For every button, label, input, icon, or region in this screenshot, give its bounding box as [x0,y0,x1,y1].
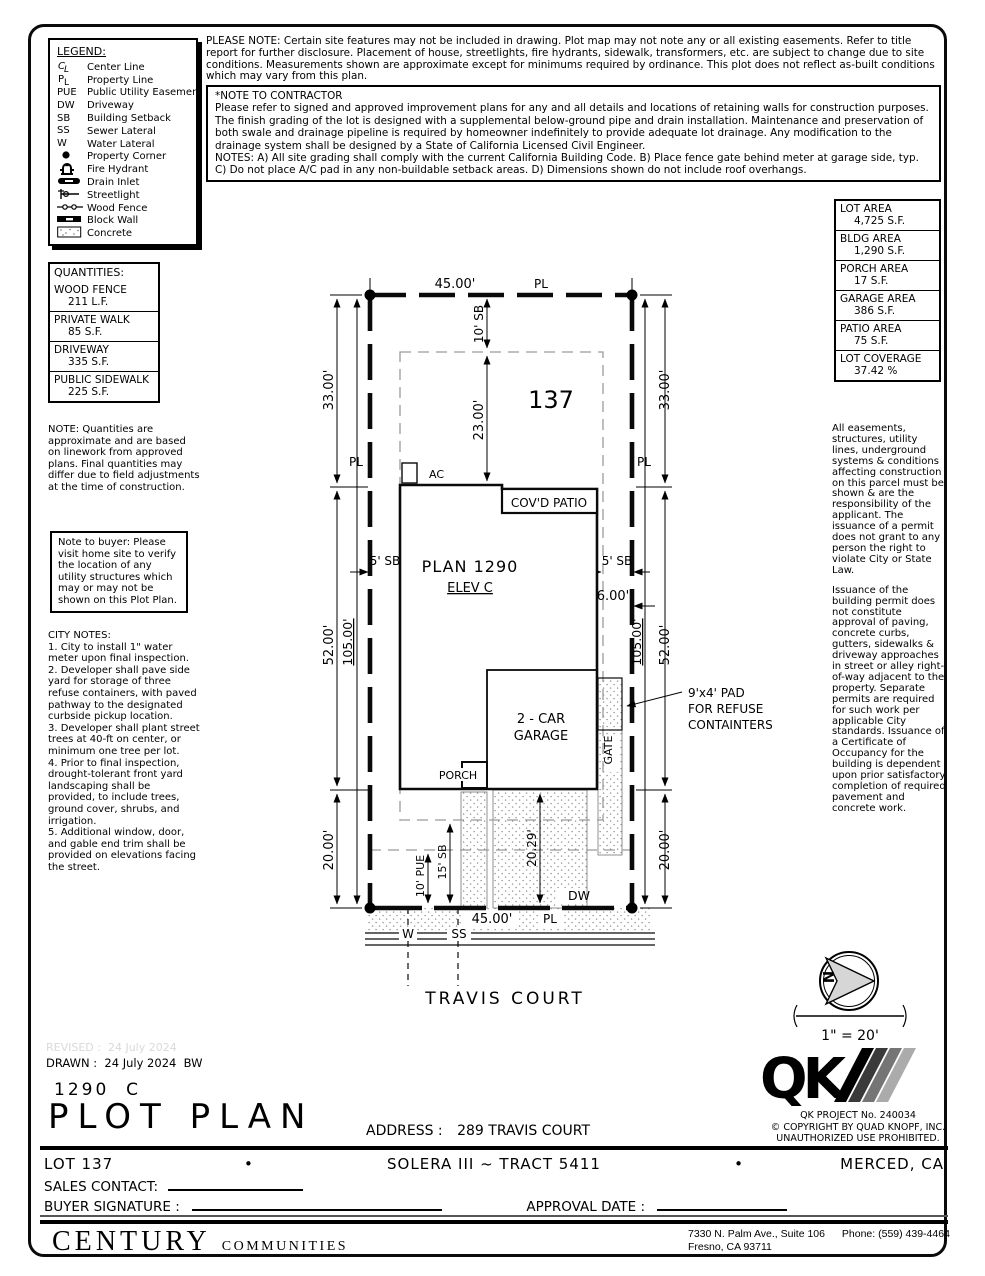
quantity-row-name: PUBLIC SIDEWALK [54,374,154,386]
sb-abbr: SB [57,114,87,124]
legend-item-label: Center Line [87,62,145,73]
qk-project-number: QK PROJECT No. 240034 [800,1110,916,1121]
brand-century: CENTURY [52,1226,211,1257]
svg-text:10' PUE: 10' PUE [414,855,427,897]
legend: LEGEND: CLCenter LinePLProperty LinePUEP… [48,38,198,246]
dw-abbr: DW [57,101,87,111]
city-note-line: 2. Developer shall pave side yard for st… [48,665,200,723]
north-compass: N [820,952,878,1010]
lot-label: LOT 137 [44,1155,244,1173]
wood-fence-icon [57,201,87,216]
buyer-signature-label: BUYER SIGNATURE : [44,1199,180,1215]
legend-item-label: Property Corner [87,151,166,162]
street-name: TRAVIS COURT [424,989,585,1009]
pue-abbr: PUE [57,88,87,98]
legend-item-label: Building Setback [87,113,171,124]
approval-date-blank [657,1197,787,1211]
qk-copyright: © COPYRIGHT BY QUAD KNOPF, INC. [771,1122,945,1133]
refuse-note: CONTAINTERS [688,718,773,732]
brand-communities: COMMUNITIES [222,1239,348,1254]
tract-label: SOLERA III ~ TRACT 5411 [254,1155,734,1173]
svg-text:PL: PL [534,277,548,291]
lot-row: LOT 137 • SOLERA III ~ TRACT 5411 • MERC… [44,1155,944,1173]
permit-note-paragraph: All easements, structures, utility lines… [832,424,946,577]
sales-contact-blank [168,1177,303,1191]
legend-item: Concrete [57,227,189,240]
legend-item-label: Public Utility Easement [87,87,202,98]
quantity-row-name: PRIVATE WALK [54,314,154,326]
legend-item: SSSewer Lateral [57,125,189,138]
divider-thick [40,1146,948,1150]
quantities-note: NOTE: Quantities are approximate and are… [48,424,200,494]
quantity-row-value: 225 S.F. [54,386,154,398]
divider-thin [40,1215,948,1217]
legend-item-label: Concrete [87,228,132,239]
quantity-row: DRIVEWAY335 S.F. [50,341,158,371]
city-label: MERCED, CA [744,1155,944,1173]
legend-item-label: Fire Hydrant [87,164,148,175]
bullet: • [244,1155,254,1173]
qk-logo-block: QK QK PROJECT No. 240034 © COPYRIGHT BY … [758,1046,950,1152]
refuse-leader-arrow [627,692,682,706]
svg-text:5' SB: 5' SB [602,554,633,568]
legend-title: LEGEND: [57,45,189,58]
builder-phone: Phone: (559) 439-4464 [842,1228,950,1240]
bullet: • [734,1155,744,1173]
area-row-value: 1,290 S.F. [840,245,935,257]
svg-text:52.00': 52.00' [658,625,673,666]
svg-text:PL: PL [543,912,557,926]
city-note-line: 5. Additional window, door, and gable en… [48,827,200,873]
quantities-title: QUANTITIES: [50,264,158,282]
sales-contact-row: SALES CONTACT: [44,1177,303,1195]
area-row-value: 386 S.F. [840,305,935,317]
plot-plan-sheet: 45.00' PL 45.00' PL PL PL 33.00' 33.00' … [0,0,985,1276]
w-abbr: W [57,139,87,149]
qk-prohibited: UNAUTHORIZED USE PROHIBITED. [776,1133,939,1144]
svg-text:52.00': 52.00' [322,625,337,666]
quantity-row: WOOD FENCE211 L.F. [50,282,158,311]
address-label: ADDRESS : [366,1123,443,1139]
legend-item-label: Sewer Lateral [87,126,156,137]
note-to-contractor-box: *NOTE TO CONTRACTOR Please refer to sign… [206,85,941,182]
quantity-row-value: 85 S.F. [54,326,154,338]
legend-item: SBBuilding Setback [57,112,189,125]
svg-text:PL: PL [637,455,651,469]
svg-text:5' SB: 5' SB [370,554,401,568]
signature-row: BUYER SIGNATURE : APPROVAL DATE : [44,1197,787,1215]
refuse-note: 9'x4' PAD [688,686,745,700]
contractor-title: *NOTE TO CONTRACTOR [215,90,932,102]
svg-text:33.00': 33.00' [322,370,337,411]
builder-city: Fresno, CA 93711 [688,1241,950,1254]
area-row-value: 4,725 S.F. [840,215,935,227]
legend-item: PUEPublic Utility Easement [57,87,189,100]
refuse-note: FOR REFUSE [688,702,763,716]
builder-address: 7330 N. Palm Ave., Suite 106 Phone: (559… [688,1228,950,1254]
svg-text:23.00': 23.00' [472,400,487,441]
svg-text:PL: PL [349,455,363,469]
driveway-label: DW [568,888,590,903]
qk-logo-stripes [834,1048,916,1102]
concrete-icon [57,226,87,241]
svg-text:20.00': 20.00' [322,830,337,871]
qk-logo: QK [760,1047,849,1112]
svg-text:105.00': 105.00' [629,618,644,665]
svg-text:15' SB: 15' SB [436,844,449,879]
svg-text:33.00': 33.00' [658,370,673,411]
area-table: LOT AREA4,725 S.F.BLDG AREA1,290 S.F.POR… [834,199,941,382]
legend-item: PLProperty Line [57,74,189,87]
area-row-name: LOT COVERAGE [840,353,935,365]
drawn-date: DRAWN : 24 July 2024 BW [46,1056,203,1070]
svg-text:6.00': 6.00' [597,589,630,604]
area-row-value: 17 S.F. [840,275,935,287]
legend-item-label: Property Line [87,75,153,86]
covered-patio-label: COV'D PATIO [511,496,587,510]
area-row: LOT COVERAGE37.42 % [836,350,939,380]
please-note: PLEASE NOTE: Certain site features may n… [206,36,939,83]
address-row: ADDRESS : 289 TRAVIS COURT [366,1123,590,1139]
area-row-name: BLDG AREA [840,233,935,245]
buyer-signature-blank [192,1197,442,1211]
legend-item-label: Block Wall [87,215,138,226]
builder-street: 7330 N. Palm Ave., Suite 106 [688,1228,825,1240]
area-row: PATIO AREA75 S.F. [836,320,939,350]
area-row: LOT AREA4,725 S.F. [836,201,939,230]
quantity-row-value: 211 L.F. [54,296,154,308]
ss-abbr: SS [57,126,87,136]
legend-item: DWDriveway [57,99,189,112]
area-row-name: PORCH AREA [840,263,935,275]
buyer-note-box: Note to buyer: Please visit home site to… [50,531,188,613]
area-row-name: LOT AREA [840,203,935,215]
builder-brand: CENTURY COMMUNITIES [52,1226,348,1258]
plan-label: PLAN 1290 [422,557,519,576]
area-row: BLDG AREA1,290 S.F. [836,230,939,260]
permit-note-paragraph: Issuance of the building permit does not… [832,586,946,815]
ac-pad-outline [402,463,417,483]
svg-text:20.00': 20.00' [658,830,673,871]
contractor-note-line: NOTES: A) All site grading shall comply … [215,152,932,177]
quantity-row-name: WOOD FENCE [54,284,154,296]
lot-number: 137 [528,386,574,414]
area-row: PORCH AREA17 S.F. [836,260,939,290]
porch-label: PORCH [439,769,477,782]
city-notes-title: CITY NOTES: [48,630,200,642]
svg-text:L: L [64,78,69,86]
area-row-name: PATIO AREA [840,323,935,335]
area-row-name: GARAGE AREA [840,293,935,305]
svg-text:105.00': 105.00' [340,618,355,665]
svg-text:45.00': 45.00' [435,277,476,292]
north-label: N [820,971,838,984]
sales-contact-label: SALES CONTACT: [44,1179,158,1195]
garage-label: GARAGE [514,729,568,744]
quantities-table: QUANTITIES: WOOD FENCE211 L.F.PRIVATE WA… [48,262,160,403]
legend-item: Wood Fence [57,202,189,215]
legend-item-label: Water Lateral [87,139,155,150]
svg-text:20.29': 20.29' [525,829,539,867]
svg-text:45.00': 45.00' [472,912,513,927]
contractor-note-line: The finish grading of the lot is designe… [215,115,932,152]
address-value: 289 TRAVIS COURT [457,1123,590,1139]
legend-item-label: Streetlight [87,190,140,201]
revised-date: REVISED : 24 July 2024 [46,1041,177,1054]
permit-notes: All easements, structures, utility lines… [832,424,946,824]
quantity-row-name: DRIVEWAY [54,344,154,356]
city-note-line: 4. Prior to final inspection, drought-to… [48,758,200,828]
approval-date-label: APPROVAL DATE : [526,1199,645,1215]
water-lateral-label: W [402,927,414,941]
garage-label: 2 - CAR [517,712,565,727]
area-row: GARAGE AREA386 S.F. [836,290,939,320]
sheet-title: PLOT PLAN [48,1097,315,1137]
scale-label: 1" = 20' [821,1028,879,1044]
legend-item-label: Wood Fence [87,203,147,214]
legend-item-label: Driveway [87,100,134,111]
city-notes: CITY NOTES: 1. City to install 1" water … [48,630,200,873]
legend-item-label: Drain Inlet [87,177,139,188]
sewer-lateral-label: SS [451,927,466,941]
footer-bar [40,1220,948,1224]
area-row-value: 37.42 % [840,365,935,377]
elev-label: ELEV C [447,581,493,596]
gate-label: GATE [602,736,615,765]
ac-label: AC [429,468,444,481]
city-note-line: 1. City to install 1" water meter upon f… [48,642,200,665]
city-note-line: 3. Developer shall plant street trees at… [48,723,200,758]
quantity-row: PUBLIC SIDEWALK225 S.F. [50,371,158,401]
contractor-note-line: Please refer to signed and approved impr… [215,102,932,114]
quantity-row-value: 335 S.F. [54,356,154,368]
svg-text:10' SB: 10' SB [472,305,486,343]
quantity-row: PRIVATE WALK85 S.F. [50,311,158,341]
area-row-value: 75 S.F. [840,335,935,347]
